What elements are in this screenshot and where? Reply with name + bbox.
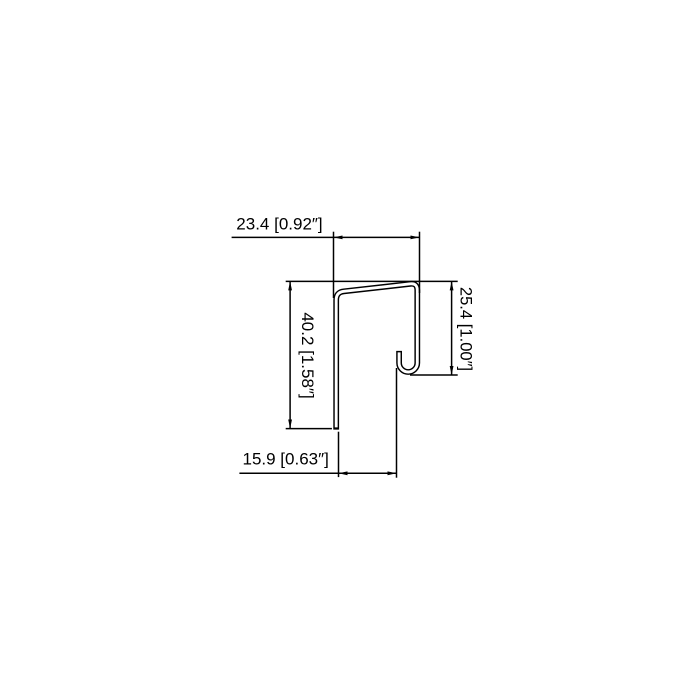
svg-text:40.2 [1.58″]: 40.2 [1.58″] xyxy=(298,312,317,398)
svg-text:23.4 [0.92″]: 23.4 [0.92″] xyxy=(236,215,322,234)
svg-text:25.4 [1.00″]: 25.4 [1.00″] xyxy=(457,287,476,371)
svg-text:15.9 [0.63″]: 15.9 [0.63″] xyxy=(243,449,329,468)
